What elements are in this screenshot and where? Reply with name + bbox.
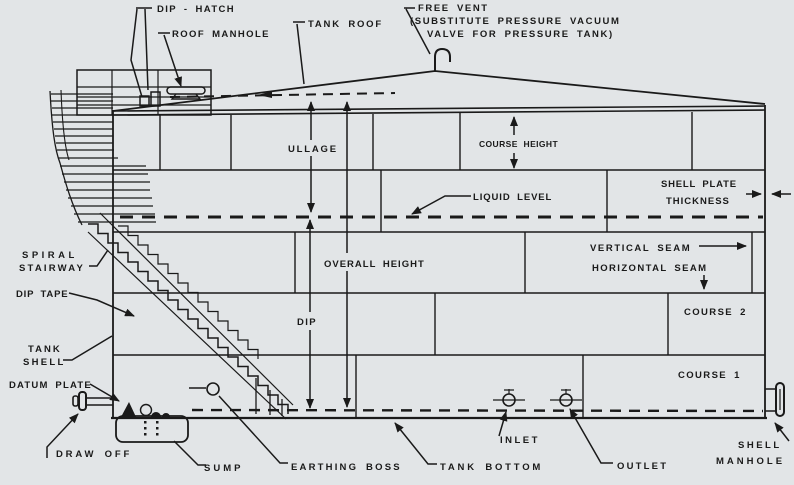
draw-off-label: DRAW OFF: [56, 449, 132, 460]
dip-hatch-label: DIP - HATCH: [157, 4, 235, 15]
tank-shell-label-line1: TANK: [28, 344, 62, 355]
shell-manhole-label-line1: SHELL: [738, 440, 782, 451]
liquid-level-label: LIQUID LEVEL: [473, 192, 552, 203]
dip-hatch-leader: [131, 8, 152, 97]
tank-diagram: DIP - HATCH ROOF MANHOLE TANK ROOF FREE …: [0, 0, 794, 485]
tank-roof-leader: [293, 22, 305, 84]
tank-shell-leader: [63, 336, 112, 360]
liquid-level-leader: [412, 196, 471, 214]
tank-shell-outline: [111, 105, 767, 418]
free-vent-label-line3: VALVE FOR PRESSURE TANK): [427, 29, 614, 40]
outlet-label: OUTLET: [617, 461, 668, 472]
tank-shell-label-line2: SHELL: [23, 357, 66, 368]
overall-height-label: OVERALL HEIGHT: [324, 259, 425, 270]
spiral-stairway-drawing: [50, 70, 293, 419]
tank-diagram-svg: DIP - HATCH ROOF MANHOLE TANK ROOF FREE …: [0, 0, 794, 485]
shell-manhole-leader: [775, 423, 789, 441]
sump-label: SUMP: [204, 463, 243, 474]
spiral-stairway-label-line1: SPIRAL: [22, 250, 78, 261]
dip-tape-label: DIP TAPE: [16, 289, 68, 300]
stair-foot-blobs: [151, 412, 170, 417]
tank-roof-label: TANK ROOF: [308, 19, 383, 30]
tank-bottom-leader: [395, 423, 437, 464]
sump-box: [116, 416, 188, 442]
inlet-leader: [499, 412, 506, 436]
sump-drain-dots: [144, 421, 159, 436]
shell-plate-label-line1: SHELL PLATE: [661, 179, 737, 190]
shell-manhole-neck: [765, 389, 776, 411]
horizontal-seam-label: HORIZONTAL SEAM: [592, 263, 707, 274]
sump-leader: [174, 441, 206, 465]
stair-base-roller: [141, 405, 152, 416]
course-1-label: COURSE 1: [678, 370, 741, 381]
roof-manhole-fitting: [167, 87, 205, 94]
free-vent-label-line1: FREE VENT: [418, 3, 489, 14]
earthing-boss-leader: [219, 396, 288, 463]
free-vent-pipe: [435, 49, 450, 71]
course-2-label: COURSE 2: [684, 307, 747, 318]
stair-steps-zigzag: [88, 224, 288, 414]
tank-bottom-label: TANK BOTTOM: [440, 462, 543, 473]
course-height-label: COURSE HEIGHT: [479, 139, 558, 149]
dip-label: DIP: [297, 317, 317, 328]
shell-manhole-label-line2: MANHOLE: [716, 456, 785, 467]
datum-plate-marker: [121, 402, 136, 417]
stair-handrail: [100, 213, 293, 405]
earthing-boss-label: EARTHING BOSS: [291, 462, 402, 473]
inlet-nozzle-symbol: [493, 389, 525, 406]
spiral-stairway-label-line2: STAIRWAY: [19, 263, 85, 274]
vertical-seams-row4: [435, 293, 668, 355]
dip-tape-leader: [69, 293, 134, 316]
ullage-label: ULLAGE: [288, 144, 338, 155]
roof-manhole-label: ROOF MANHOLE: [172, 29, 270, 40]
roof-manhole-leader: [158, 33, 181, 86]
free-vent-label-line2: (SUBSTITUTE PRESSURE VACUUM: [410, 16, 621, 27]
vertical-seams-row1: [160, 112, 692, 170]
outlet-nozzle-symbol: [550, 389, 582, 406]
bottom-fittings: [73, 383, 784, 442]
dip-hatch-fitting-2: [151, 92, 160, 106]
draw-off-cap: [73, 396, 78, 406]
shell-plate-label-line2: THICKNESS: [666, 196, 730, 207]
vertical-seam-label: VERTICAL SEAM: [590, 243, 691, 254]
draw-off-flange: [79, 392, 86, 410]
draw-off-pipe: [87, 398, 113, 405]
spiral-stairway-leader: [89, 250, 108, 266]
earthing-boss-symbol: [189, 383, 219, 395]
ladder-rungs: [51, 94, 156, 222]
datum-plate-label: DATUM PLATE: [9, 380, 92, 391]
inlet-label: INLET: [500, 435, 540, 446]
vertical-seams-row5: [356, 355, 583, 418]
